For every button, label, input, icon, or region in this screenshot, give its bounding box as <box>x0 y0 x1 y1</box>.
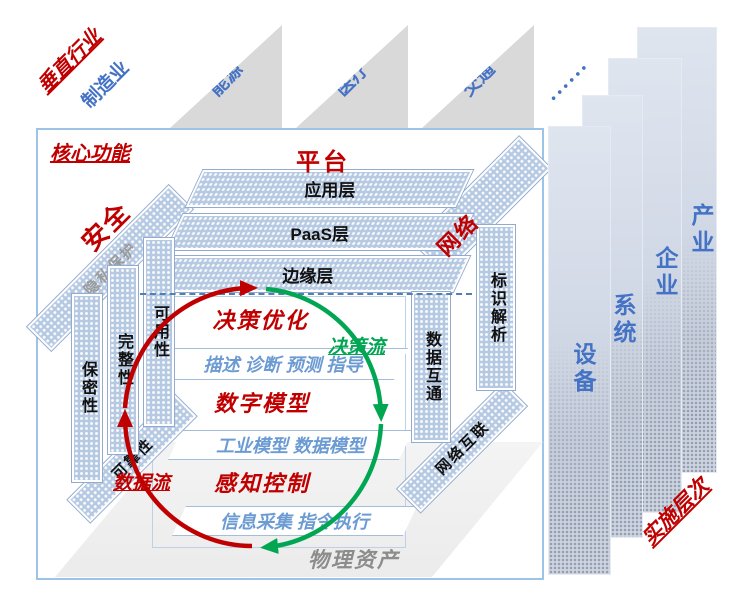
data-flow-label: 数据流 <box>113 468 170 495</box>
data-interop-label: 数据互通 <box>419 331 443 403</box>
security-col-integrity: 完整性 <box>108 266 138 454</box>
sector-label-healthcare: 医疗 <box>328 56 374 102</box>
function-model-detail: 工业模型 数据模型 <box>216 432 365 458</box>
identifier-resolution-label: 标识解析 <box>484 272 508 344</box>
physical-asset-label: 物理资产 <box>308 544 400 574</box>
core-functions-title: 核心功能 <box>50 137 130 166</box>
layer-edge-label: 边缘层 <box>283 262 334 287</box>
function-perception-title: 感知控制 <box>172 466 352 498</box>
security-col-availability: 可用性 <box>144 238 174 426</box>
function-model-title: 数字模型 <box>172 386 352 418</box>
confidentiality-label: 保密性 <box>75 361 99 415</box>
function-decision-title: 决策优化 <box>168 303 353 335</box>
decision-flow-label: 决策流 <box>328 332 385 359</box>
layer-paas-label: PaaS层 <box>290 220 349 245</box>
sector-triangle-transport: 交通 <box>422 25 534 128</box>
sector-label-energy: 能源 <box>202 56 248 102</box>
level-label-enterprise: 企业 <box>648 246 682 300</box>
sector-triangle-energy: 能源 <box>170 25 282 128</box>
level-label-system: 系统 <box>606 293 640 347</box>
security-col-confidentiality: 保密性 <box>72 294 102 482</box>
layer-edge: 边缘层 <box>146 256 470 292</box>
level-label-industry: 产业 <box>684 203 718 257</box>
network-col-identifier-resolution: 标识解析 <box>477 225 515 390</box>
edge-dashed-line <box>140 293 472 295</box>
architecture-diagram: 垂直行业 制造业 能源 医疗 交通 •••••• 核心功能 平台 安全 网络 应… <box>0 0 753 598</box>
sector-label-transport: 交通 <box>454 56 500 102</box>
function-model-detail-band: 工业模型 数据模型 <box>168 430 413 460</box>
integrity-label: 完整性 <box>111 333 135 387</box>
platform-title: 平台 <box>296 142 350 177</box>
layer-application-label: 应用层 <box>304 176 355 201</box>
sector-triangle-healthcare: 医疗 <box>296 25 408 128</box>
level-label-device: 设备 <box>566 342 600 396</box>
function-perception-detail-band: 信息采集 指令执行 <box>172 506 417 536</box>
availability-label: 可用性 <box>147 305 171 359</box>
network-col-data-interop: 数据互通 <box>412 292 450 442</box>
function-perception-detail: 信息采集 指令执行 <box>220 508 369 534</box>
